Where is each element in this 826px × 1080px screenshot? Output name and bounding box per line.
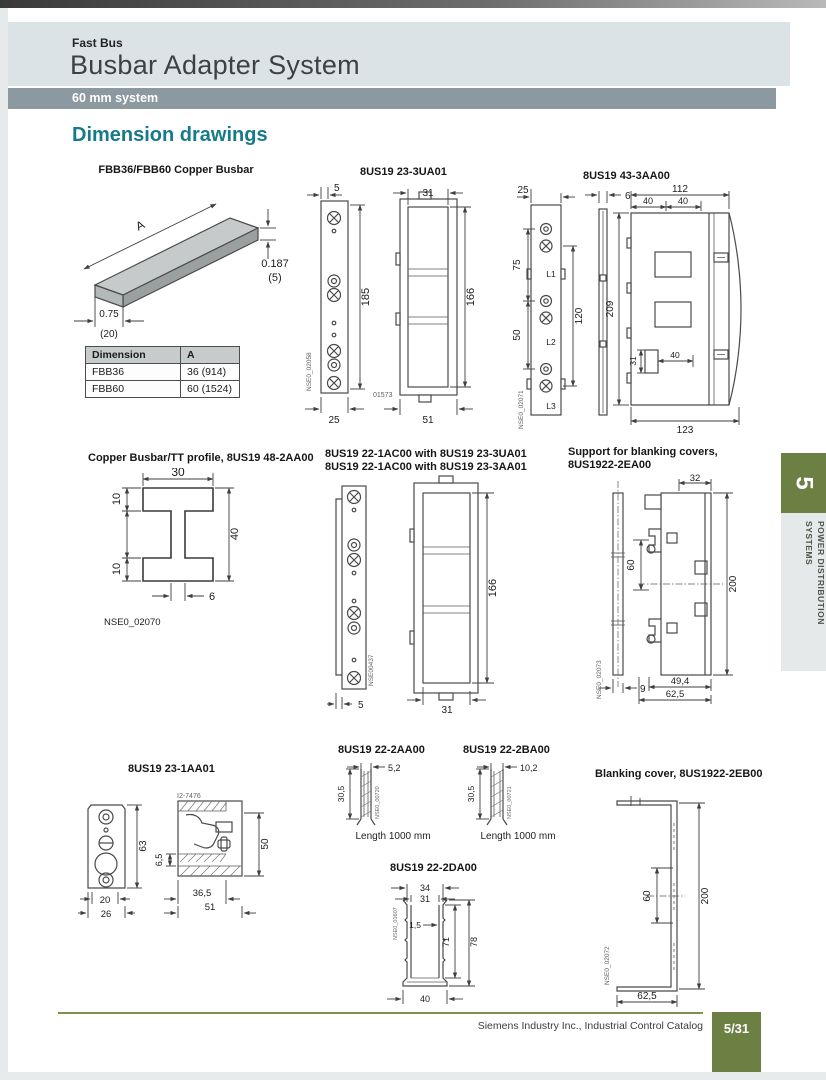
- adapter-23-1aa01-title: 8US19 23-1AA01: [128, 763, 215, 776]
- dim-label: 6: [625, 191, 631, 202]
- profile-22-2da00-title: 8US19 22-2DA00: [390, 862, 477, 875]
- table-row: FBB60 60 (1524): [86, 381, 240, 398]
- dim-label: 71: [441, 937, 451, 947]
- rail-side-view: [611, 481, 625, 687]
- dim-label: 51: [205, 902, 216, 913]
- footer-catalog-text: Siemens Industry Inc., Industrial Contro…: [300, 1020, 703, 1032]
- table-header-dimension: Dimension: [86, 347, 181, 364]
- dim-label: 6,5: [154, 854, 164, 867]
- dim-label: 9: [640, 684, 646, 695]
- dim-label-thickness-mm: (5): [268, 272, 281, 284]
- tt-profile-drawing: 30 10 10 40 6 NSE0_02070: [88, 468, 263, 633]
- dim-label: 40: [643, 196, 653, 206]
- support-blanking-drawing: NSE0_02073 9 32 60 200 49,4 62,5: [583, 473, 743, 705]
- busbar-dimension-table: Dimension A FBB36 36 (914) FBB60 60 (152…: [85, 346, 240, 398]
- table-cell: FBB60: [86, 381, 181, 398]
- adapter-22-1ac00-title: 8US19 22-1AC00 with 8US19 23-3UA01 8US19…: [325, 448, 527, 474]
- dim-label: 166: [487, 579, 499, 597]
- tab-label-line: SYSTEMS: [804, 521, 814, 671]
- section-tab-label: POWER DISTRIBUTION SYSTEMS: [781, 513, 826, 671]
- length-note: Length 1000 mm: [463, 831, 573, 842]
- dim-label: 30,5: [466, 785, 476, 802]
- adapter-front-view: [627, 213, 741, 405]
- dim-label: 31: [628, 356, 638, 366]
- dim-label: 31: [420, 894, 430, 904]
- ref-label: NSE0_01607: [393, 907, 399, 940]
- title-line: 8US1922-2EA00: [568, 459, 718, 472]
- dim-label: 123: [677, 425, 694, 435]
- dim-label: 60: [626, 559, 637, 571]
- dim-label: 32: [690, 473, 701, 484]
- dim-label: 31: [441, 705, 453, 716]
- dim-label: 6: [209, 591, 215, 603]
- title-line: Support for blanking covers,: [568, 446, 718, 459]
- side-view: [321, 201, 348, 393]
- dim-label-width-mm: (20): [100, 329, 118, 340]
- dim-label: 40: [420, 994, 430, 1004]
- catalog-page: Fast Bus Busbar Adapter System 60 mm sys…: [0, 0, 826, 1080]
- dim-label: 5: [334, 183, 340, 194]
- ref-label: NSE0_02073: [596, 660, 603, 699]
- dim-label: 5,2: [388, 763, 401, 773]
- dim-label: 75: [513, 259, 523, 271]
- dim-label-thickness-in: 0.187: [261, 258, 289, 270]
- section-title: Dimension drawings: [72, 124, 268, 147]
- side-section-view: [178, 801, 242, 876]
- ref-label: NSE00437: [368, 654, 375, 686]
- ref-label: NSE0_00721: [507, 786, 513, 819]
- length-note: Length 1000 mm: [338, 831, 448, 842]
- left-edge-strip: [0, 8, 8, 1072]
- front-view: [410, 476, 478, 700]
- table-row: FBB36 36 (914): [86, 364, 240, 381]
- side-view: [336, 486, 366, 689]
- profile-22-2aa00-drawing: 5,2 30,5 NSE0_00720: [338, 761, 448, 836]
- adapter-43-3aa00-drawing: L1 L2 L3 25 75 50 120 NSE0_02071 6: [513, 183, 748, 435]
- blanking-cover-title: Blanking cover, 8US1922-2EB00: [595, 768, 763, 781]
- ref-label: NSE0_02072: [604, 946, 611, 985]
- dim-label: 30: [171, 468, 185, 479]
- front-view: [396, 192, 457, 402]
- adapter-43-3aa00-title: 8US19 43-3AA00: [583, 170, 670, 183]
- tab-label-line: POWER DISTRIBUTION: [816, 521, 826, 671]
- dim-label: 166: [465, 288, 477, 306]
- ref-label: NSE0_02071: [518, 390, 525, 429]
- terminal-strip-view: L1 L2 L3: [527, 205, 565, 415]
- bottom-edge-strip: [0, 1072, 826, 1080]
- dim-label: 50: [260, 838, 271, 850]
- dim-label: 112: [672, 184, 688, 195]
- channel-profile: [357, 769, 375, 825]
- table-header-a: A: [181, 347, 240, 364]
- top-edge-strip: [0, 0, 826, 8]
- adapter-23-1aa01-drawing: 63 20 26 I2-7476 6,5: [78, 780, 273, 930]
- dim-label: 60: [642, 890, 653, 902]
- dim-label: 36,5: [193, 888, 212, 899]
- dim-label: 49,4: [671, 676, 690, 687]
- dim-label: 78: [469, 937, 479, 947]
- connector-label: L2: [546, 337, 556, 347]
- blanking-cover-drawing: 60 200 62,5 NSE0_02072: [593, 793, 753, 1008]
- adapter-22-1ac00-drawing: NSE00437 5 166 31: [326, 473, 506, 718]
- page-number-badge: 5/31: [712, 1012, 761, 1072]
- system-band: 60 mm system: [8, 88, 776, 109]
- dim-label: 40: [670, 350, 680, 360]
- dim-label: 10,2: [520, 763, 538, 773]
- footer-rule: [58, 1012, 703, 1014]
- dim-label: 62,5: [666, 689, 685, 700]
- ref-label: I2-7476: [177, 793, 201, 800]
- table-cell: 36 (914): [181, 364, 240, 381]
- dim-label: 34: [420, 883, 430, 893]
- dim-label: 31: [422, 188, 434, 199]
- tab-number-text: 5: [789, 476, 817, 489]
- busbar-drawing: A 0.187 (5) 0.75 (20): [70, 185, 300, 345]
- dim-label: 1,5: [409, 920, 421, 930]
- profile-22-2ba00-title: 8US19 22-2BA00: [463, 744, 550, 757]
- dim-label: 120: [574, 307, 585, 324]
- busbar-drawing-title: FBB36/FBB60 Copper Busbar: [86, 164, 266, 177]
- dim-label: 185: [360, 288, 372, 306]
- dim-label: 50: [513, 329, 523, 341]
- dim-label: 63: [138, 840, 149, 852]
- dim-label: 10: [111, 493, 123, 505]
- busbar-shape: [95, 218, 258, 307]
- table-cell: FBB36: [86, 364, 181, 381]
- adapter-23-3ua01-title: 8US19 23-3UA01: [360, 166, 447, 179]
- profile-22-2aa00-title: 8US19 22-2AA00: [338, 744, 425, 757]
- dim-label: 26: [101, 909, 112, 920]
- table-cell: 60 (1524): [181, 381, 240, 398]
- ref-label: NSE0_02070: [104, 617, 161, 628]
- dim-label: 40: [678, 196, 688, 206]
- support-profile-view: [638, 493, 723, 675]
- dim-label: 25: [517, 185, 529, 196]
- channel-profile: [487, 769, 507, 825]
- support-blanking-title: Support for blanking covers, 8US1922-2EA…: [568, 446, 718, 472]
- profile-22-2ba00-drawing: 10,2 30,5 NSE0_00721: [463, 761, 573, 836]
- profile-22-2da00-drawing: 34 31 1,5 71 78 40 NSE0_01607: [385, 878, 505, 1013]
- dim-label: 10: [111, 563, 123, 575]
- ref-label: NSE0_02058: [306, 352, 313, 391]
- dim-label: 209: [605, 300, 616, 317]
- dim-label: 62,5: [637, 991, 657, 1002]
- page-title: Busbar Adapter System: [70, 50, 360, 81]
- dim-label: 25: [328, 415, 340, 426]
- dim-label-length: A: [133, 217, 146, 233]
- ref-label: 01573: [373, 392, 393, 399]
- ref-label: NSE0_00720: [375, 786, 381, 819]
- tt-profile-title: Copper Busbar/TT profile, 8US19 48-2AA00: [88, 452, 314, 465]
- header-eyebrow: Fast Bus: [72, 36, 123, 50]
- dim-label: 40: [229, 528, 241, 540]
- connector-label: L1: [546, 269, 556, 279]
- adapter-23-3ua01-drawing: 5 185 25 NSE0_02058 01573 31 166 51: [303, 183, 478, 428]
- dim-label: 200: [728, 575, 739, 592]
- dim-label: 200: [700, 887, 711, 904]
- dim-label: 30,5: [338, 785, 346, 802]
- section-tab-number[interactable]: 5: [781, 453, 826, 513]
- title-line: 8US19 22-1AC00 with 8US19 23-3UA01: [325, 448, 527, 461]
- end-view: [88, 805, 125, 888]
- connector-label: L3: [546, 401, 556, 411]
- dim-label: 5: [358, 700, 364, 711]
- tt-profile-shape: [143, 488, 213, 581]
- dim-label: 20: [100, 895, 111, 906]
- dim-label-width-in: 0.75: [99, 309, 119, 320]
- dim-label: 51: [422, 415, 434, 426]
